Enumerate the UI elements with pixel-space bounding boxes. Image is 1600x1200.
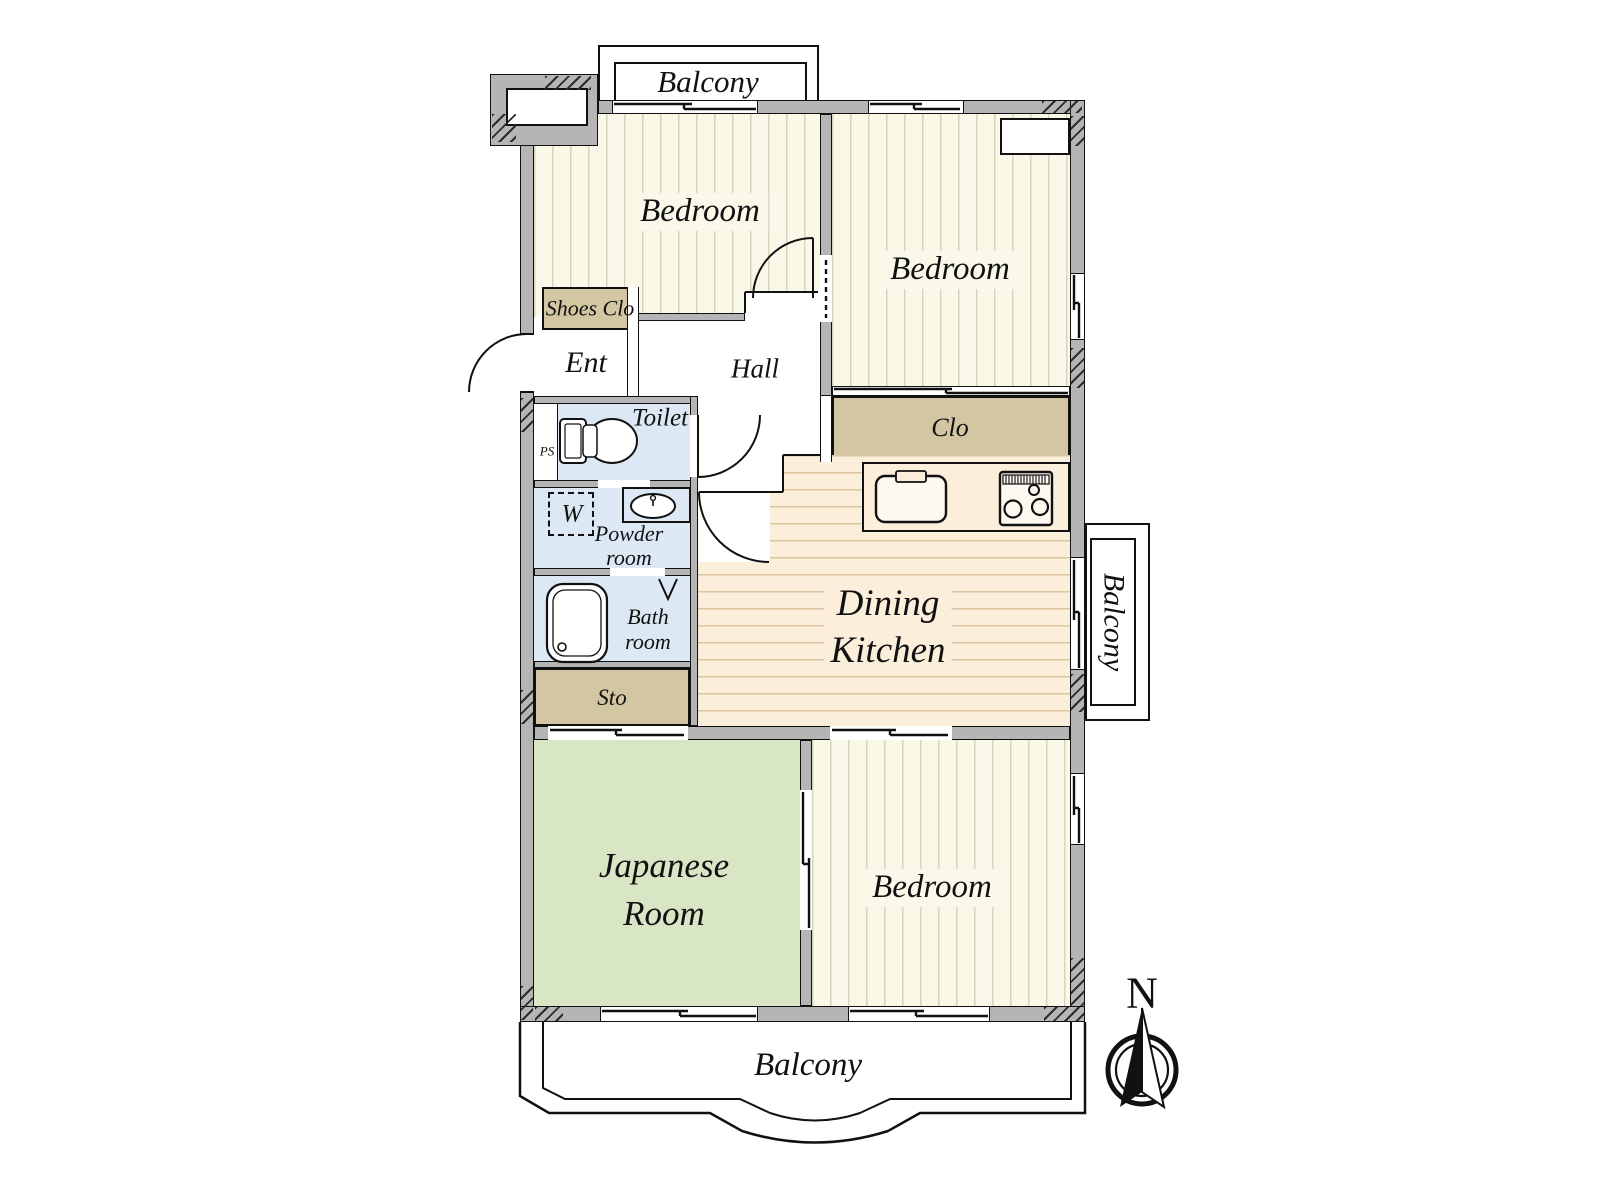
floor-plan: Bedroom Bedroom Bedroom Japanese Room Di…	[0, 0, 1600, 1200]
label-dining-kitchen: Dining Kitchen	[824, 580, 951, 674]
toilet-door-gap	[690, 415, 698, 477]
hall-area-dk-pocket	[698, 492, 770, 562]
window-top-bedroom2	[868, 100, 964, 114]
label-japanese-line2: Room	[599, 890, 729, 938]
compass-needle-dark	[1120, 1008, 1142, 1107]
label-japanese-room: Japanese Room	[599, 842, 729, 938]
entrance-door-gap	[520, 334, 534, 392]
label-storage: Sto	[597, 685, 626, 711]
label-bath-line2: room	[625, 629, 671, 654]
compass-needle-light	[1142, 1008, 1164, 1107]
b3-north-sliding-gap	[830, 726, 952, 740]
hatch-bottom-right-corner	[1044, 1007, 1084, 1021]
pipe-shaft-niche	[534, 400, 558, 480]
label-toilet: Toilet	[632, 405, 688, 434]
hall-area-door-nook	[745, 292, 820, 317]
label-ent: Ent	[565, 346, 607, 381]
hatch-corner-block-left	[492, 114, 516, 142]
window-right-dk	[1070, 557, 1085, 670]
label-japanese-line1: Japanese	[599, 842, 729, 890]
jr-b3-sliding-gap	[800, 790, 812, 930]
label-hall: Hall	[731, 353, 779, 384]
hatch-left-bottom	[521, 986, 533, 1020]
hatch-right-top	[1071, 116, 1084, 146]
wall-bath-bottom	[534, 661, 698, 668]
wall-toilet-top	[534, 396, 698, 404]
wall-closet-left	[820, 396, 832, 462]
label-pipe-shaft: PS	[540, 445, 554, 460]
compass-icon	[1108, 1008, 1176, 1107]
label-compass-north: N	[1126, 969, 1158, 1020]
hatch-right-bottom	[1071, 958, 1084, 1006]
hatch-right-above-window	[1071, 348, 1084, 388]
bedroom2-sliding-door-gap	[820, 255, 832, 322]
label-balcony-right: Balcony	[1096, 573, 1131, 671]
label-dk-line2: Kitchen	[824, 627, 951, 674]
label-balcony-top: Balcony	[657, 64, 759, 100]
label-bath-room: Bath room	[625, 604, 671, 654]
window-top-bedroom1	[612, 100, 758, 114]
label-powder-line2: room	[595, 546, 663, 570]
wall-ent-top	[628, 313, 745, 321]
wall-left	[520, 142, 534, 1022]
closet-track	[832, 386, 1070, 396]
label-dk-line1: Dining	[824, 580, 951, 627]
label-shoes-closet: Shoes Clo	[546, 295, 635, 320]
hatch-bottom-left-corner	[535, 1007, 563, 1021]
label-closet: Clo	[931, 413, 969, 443]
label-bath-line1: Bath	[625, 604, 671, 629]
bedroom2-shelf-nook	[1000, 118, 1070, 155]
label-powder-room: Powder room	[595, 522, 663, 570]
hall-area-step	[698, 455, 783, 492]
label-powder-line1: Powder	[595, 522, 663, 546]
jr-north-sliding-gap	[548, 726, 688, 740]
hatch-top-right-corner	[1042, 101, 1082, 113]
window-right-bedroom3	[1070, 773, 1085, 845]
washing-machine-box	[548, 492, 594, 536]
label-bedroom-top-right: Bedroom	[882, 251, 1018, 289]
window-bottom-bedroom3	[848, 1006, 990, 1022]
entry-corner-niche	[506, 88, 588, 126]
kitchen-counter	[862, 462, 1070, 532]
label-bedroom-top-left: Bedroom	[632, 193, 768, 231]
window-bottom-jr	[600, 1006, 758, 1022]
hatch-left-mid	[521, 690, 533, 724]
label-bedroom-bottom: Bedroom	[864, 869, 1000, 907]
hatch-right-below-window	[1071, 674, 1084, 712]
window-right-bedroom2	[1070, 273, 1085, 340]
toilet-powder-door-gap	[598, 480, 650, 488]
label-balcony-bottom: Balcony	[754, 1047, 862, 1085]
hatch-corner-block-top	[545, 76, 591, 90]
hatch-left-upper	[521, 398, 533, 432]
